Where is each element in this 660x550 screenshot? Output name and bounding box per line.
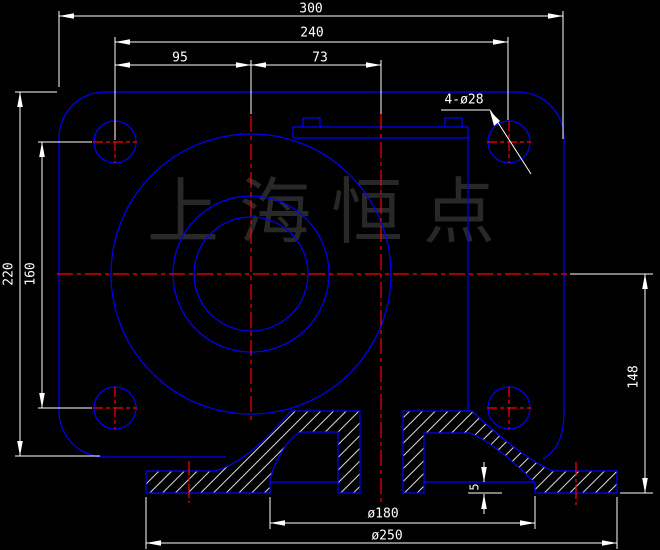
- plate-corner-arc: [543, 411, 564, 459]
- dim-73-label: 73: [312, 52, 328, 65]
- cover-plate-tabs: [303, 118, 462, 127]
- dim-148-label: 148: [628, 365, 641, 388]
- dimension-arrows: [17, 13, 648, 546]
- hole-callout-label: 4-ø28: [444, 94, 483, 107]
- plate-bottom-edge: [59, 411, 226, 457]
- dia-250-label: ø250: [371, 530, 402, 543]
- cad-drawing-canvas: 上海恒点: [0, 0, 660, 550]
- dim-95-label: 95: [172, 52, 188, 65]
- bolt-hole-centerlines: [93, 121, 531, 429]
- dim-220-label: 220: [3, 262, 16, 285]
- dim-160-label: 160: [25, 262, 38, 285]
- boss-middle-circle: [173, 196, 329, 352]
- dim-5-label: 5: [469, 483, 482, 490]
- dia-180-label: ø180: [367, 508, 398, 521]
- drawing-geometry: [0, 0, 660, 550]
- plan-view: [59, 92, 564, 459]
- section-left-half: [146, 411, 360, 493]
- dim-300-label: 300: [299, 3, 322, 16]
- dim-240-label: 240: [300, 27, 323, 40]
- section-right-half: [403, 411, 617, 493]
